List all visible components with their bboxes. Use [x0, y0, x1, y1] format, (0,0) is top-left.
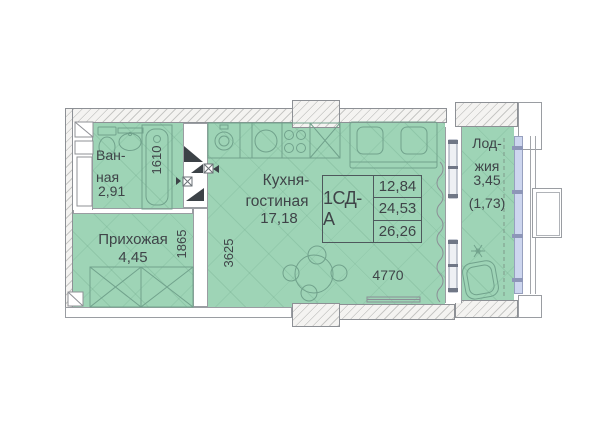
- electrical-box-icons: [183, 164, 213, 186]
- kitchen-counter-icon: [208, 123, 340, 158]
- unit-living-area: 12,84: [374, 176, 421, 197]
- hallway-label: Прихожая: [88, 233, 178, 247]
- loggia-label-line2: жия: [460, 159, 514, 173]
- bathroom-label-line2: ная: [96, 170, 144, 184]
- balcony-door-frame-icon: [448, 140, 458, 292]
- apartment-floor-plan: 1СД-А 12,84 24,53 26,26 Ван- ная 2,91 Пр…: [0, 0, 600, 424]
- kitchen-label-line2: гостиная: [237, 195, 317, 209]
- unit-areas: 12,84 24,53 26,26: [373, 176, 421, 242]
- dimension-4770: 4770: [358, 268, 418, 282]
- loggia-area: 3,45: [460, 173, 514, 187]
- armchair-icon: [461, 259, 500, 300]
- hallway-area: 4,45: [88, 251, 178, 265]
- kitchen-label-line1: Кухня-: [246, 174, 326, 188]
- unit-area: 24,53: [374, 197, 421, 219]
- sofa-icon: [350, 122, 437, 168]
- loggia-label-line1: Лод-: [460, 136, 514, 150]
- curtain-icon: [437, 162, 443, 302]
- dimension-1610: 1610: [150, 130, 164, 190]
- plant-icon: [471, 245, 485, 257]
- dining-table-icon: [283, 246, 347, 301]
- bathroom-area: 2,91: [98, 184, 146, 198]
- unit-label: 1СД-А: [323, 176, 373, 242]
- bathroom-label-line1: Ван-: [96, 148, 144, 162]
- unit-info-table: 1СД-А 12,84 24,53 26,26: [322, 175, 422, 243]
- loggia-area-reduced: (1,73): [460, 196, 514, 210]
- kitchen-area: 17,18: [239, 212, 319, 226]
- dimension-3625: 3625: [222, 223, 236, 283]
- vent-shaft-icon: [68, 122, 93, 306]
- radiator-icon: [367, 297, 420, 302]
- dimension-1865: 1865: [175, 214, 189, 274]
- stove-icon: [285, 131, 306, 153]
- unit-total-area: 26,26: [374, 220, 421, 242]
